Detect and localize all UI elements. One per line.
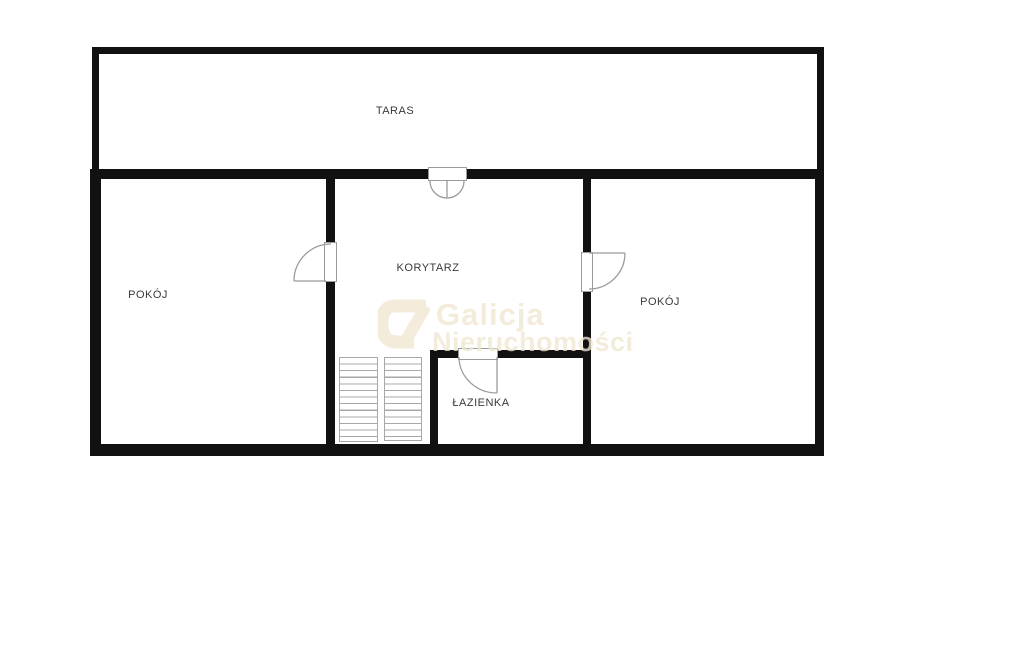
wall-corridor-right-lower bbox=[583, 290, 591, 444]
stairs-flight-left bbox=[339, 357, 378, 442]
galicja-logo-icon bbox=[378, 299, 430, 349]
lazienka-door-frame bbox=[458, 348, 498, 360]
pokoj-right-door-frame bbox=[581, 252, 593, 292]
wall-corridor-right-upper bbox=[583, 179, 591, 253]
stairs-flight-right bbox=[384, 357, 422, 441]
room-label-taras: TARAS bbox=[376, 105, 414, 117]
taras-door-frame bbox=[428, 167, 467, 181]
wall-taras-left bbox=[92, 47, 99, 179]
room-label-korytarz: KORYTARZ bbox=[397, 262, 460, 274]
wall-outer-bottom bbox=[90, 444, 824, 456]
floor-plan: TARAS POKÓJ KORYTARZ POKÓJ ŁAZIENKA Gali… bbox=[0, 0, 1024, 652]
wall-outer-left bbox=[90, 169, 101, 456]
lazienka-door-icon bbox=[459, 357, 497, 393]
wall-corridor-left bbox=[326, 179, 335, 444]
room-label-lazienka: ŁAZIENKA bbox=[452, 397, 509, 409]
wall-taras-right bbox=[817, 47, 824, 179]
wall-bathroom-left bbox=[430, 350, 438, 444]
pokoj-left-door-frame bbox=[324, 242, 337, 282]
room-label-pokoj-right: POKÓJ bbox=[640, 296, 680, 308]
room-label-pokoj-left: POKÓJ bbox=[128, 289, 168, 301]
wall-bathroom-top bbox=[430, 350, 591, 358]
watermark-line1: Galicja bbox=[436, 297, 545, 333]
wall-taras-top bbox=[92, 47, 824, 54]
wall-outer-right bbox=[815, 169, 824, 456]
pokoj-right-door-icon bbox=[589, 253, 625, 289]
taras-double-door-icon bbox=[430, 181, 464, 198]
door-swing-arcs bbox=[0, 0, 1024, 652]
